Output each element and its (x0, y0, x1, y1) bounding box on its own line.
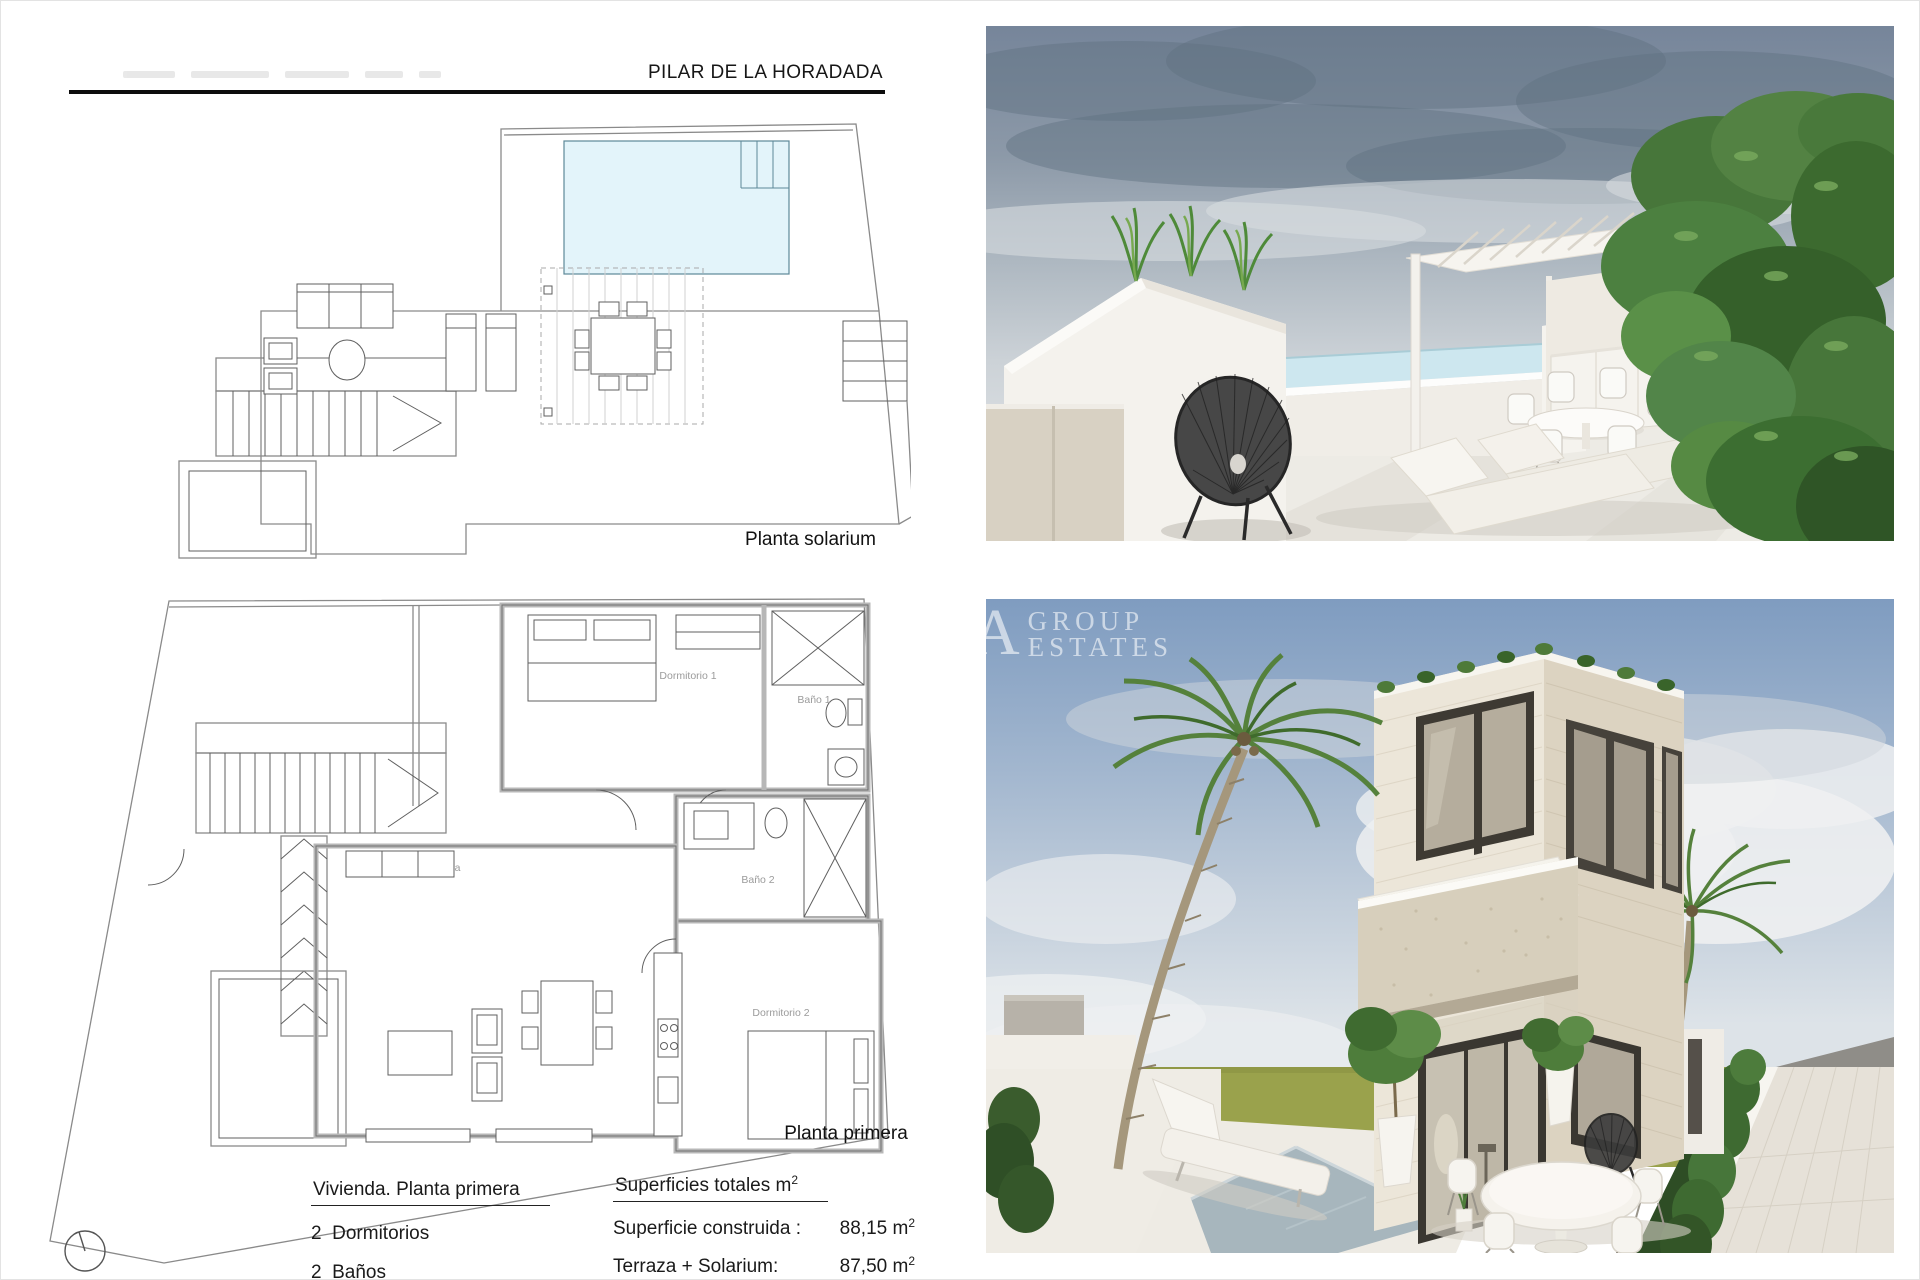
areas-heading: Superficies totales m2 (613, 1175, 828, 1202)
bedrooms-count: 2 Dormitorios (311, 1223, 550, 1245)
faint-header-marks (123, 71, 441, 78)
areas-summary: Superficies totales m2 Superficie constr… (613, 1175, 915, 1278)
built-area-label: Superficie construida : (613, 1218, 806, 1240)
bathrooms-count: 2 Baños (311, 1262, 550, 1280)
first-floor-plan-caption: Planta primera (751, 1123, 941, 1145)
solarium-render (986, 26, 1894, 541)
svg-text:Baño 1: Baño 1 (797, 694, 830, 706)
svg-text:Baño 2: Baño 2 (741, 874, 774, 886)
terrace-area-label: Terraza + Solarium: (613, 1256, 784, 1278)
svg-text:Dormitorio 1: Dormitorio 1 (659, 670, 716, 682)
title-rule (69, 90, 885, 94)
villa-render: A GROUP ESTATES (986, 599, 1894, 1253)
built-area-row: Superficie construida : 88,15 m2 (613, 1218, 915, 1240)
north-indicator-icon (61, 1227, 109, 1275)
built-area-value: 88,15 m2 (840, 1218, 915, 1240)
dwelling-summary: Vivienda. Planta primera 2 Dormitorios 2… (311, 1179, 550, 1280)
page-title: PILAR DE LA HORADADA (561, 62, 883, 84)
terrace-area-value: 87,50 m2 (840, 1256, 915, 1278)
dwelling-heading: Vivienda. Planta primera (311, 1179, 550, 1206)
solarium-floor-plan (61, 96, 911, 561)
plan-sheet: PILAR DE LA HORADADA (0, 0, 1920, 1280)
svg-text:Dormitorio 2: Dormitorio 2 (752, 1007, 809, 1019)
solarium-plan-caption: Planta solarium (713, 529, 908, 551)
terrace-area-row: Terraza + Solarium: 87,50 m2 (613, 1256, 915, 1278)
